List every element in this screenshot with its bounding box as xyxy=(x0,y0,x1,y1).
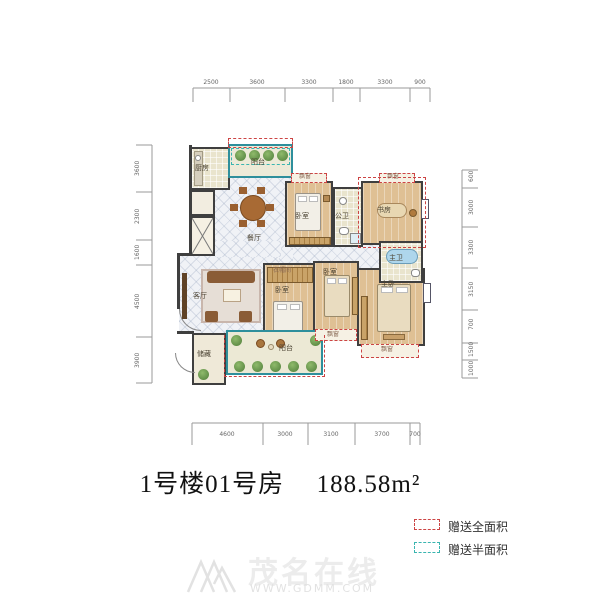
dim-left-3: 1600 xyxy=(134,238,142,266)
plan-title-area: 188.58m² xyxy=(317,471,421,498)
stair-cell xyxy=(190,190,215,216)
dim-top-5: 3300 xyxy=(373,79,397,86)
armchair xyxy=(205,311,218,322)
label-bay-2: 飘窗 xyxy=(387,174,399,181)
dim-bottom-5: 700 xyxy=(403,431,427,438)
legend-label-full: 赠送全面积 xyxy=(448,518,508,535)
bed xyxy=(377,284,411,332)
legend-swatch-red xyxy=(414,519,440,530)
pillow xyxy=(298,196,307,202)
room-storage xyxy=(192,333,226,385)
label-bath-common: 公卫 xyxy=(335,213,349,221)
label-bedroom-cloak: 卧室 xyxy=(275,287,289,295)
dim-right-6: 1500 xyxy=(468,339,476,359)
gift-full-area-outline-study xyxy=(358,177,426,248)
label-bay-1: 飘窗 xyxy=(299,174,311,181)
watermark-url: WWW.GDMM.COM xyxy=(250,582,374,595)
watermark-logo-icon xyxy=(186,550,244,596)
floor-plan: 厨房 阳台 餐厅 卧室 公卫 书房 主卫 客厅 衣帽间 卧室 卧室 主卧 阳台 … xyxy=(165,135,460,400)
label-bay-4: 飘窗 xyxy=(381,347,393,354)
chair xyxy=(230,204,238,211)
dim-right-5: 700 xyxy=(468,314,476,334)
pillow xyxy=(338,278,347,284)
pillow xyxy=(277,304,287,310)
label-living: 客厅 xyxy=(193,293,207,301)
dim-right-7: 1000 xyxy=(468,358,476,378)
watermark: 茂名在线 WWW.GDMM.COM xyxy=(186,548,446,600)
pillow xyxy=(309,196,318,202)
hall-floor xyxy=(215,241,281,257)
elevator-shaft xyxy=(190,216,215,256)
label-dining: 餐厅 xyxy=(247,235,261,243)
dim-left-1: 3600 xyxy=(134,154,142,182)
dim-right-2: 3000 xyxy=(468,195,476,219)
chair xyxy=(239,220,247,227)
wardrobe xyxy=(352,277,358,315)
elevator-x-icon xyxy=(192,218,213,254)
pillow xyxy=(290,304,300,310)
legend-swatch-cyan xyxy=(414,542,440,553)
plan-title-name: 1号楼01号房 xyxy=(140,471,285,498)
label-bath-master: 主卫 xyxy=(389,255,403,263)
dimension-ticks-top xyxy=(165,86,445,102)
dim-bottom-3: 3100 xyxy=(319,431,343,438)
wardrobe xyxy=(289,237,331,245)
plant-icon xyxy=(198,369,209,380)
kitchen-sink xyxy=(195,155,201,161)
label-bedroom-middle: 卧室 xyxy=(323,269,337,277)
dim-bottom-1: 4600 xyxy=(215,431,239,438)
dim-bottom-4: 3700 xyxy=(370,431,394,438)
label-cloakroom: 衣帽间 xyxy=(273,268,291,275)
storage-door-arc xyxy=(175,353,195,373)
label-master: 主卧 xyxy=(381,281,395,289)
toilet xyxy=(411,269,420,277)
dim-top-3: 3300 xyxy=(297,79,321,86)
chair xyxy=(266,204,274,211)
dim-right-4: 3150 xyxy=(468,277,476,301)
room-bedroom-top xyxy=(285,181,333,247)
bed xyxy=(324,275,350,317)
label-balcony-bottom: 阳台 xyxy=(279,345,293,353)
chair xyxy=(257,187,265,194)
label-bay-3: 飘窗 xyxy=(327,332,339,339)
dining-table xyxy=(240,195,266,221)
gift-full-area-outline-top xyxy=(228,138,293,148)
window xyxy=(423,283,431,303)
label-study: 书房 xyxy=(377,207,391,215)
dim-top-1: 2500 xyxy=(199,79,223,86)
bed-bench xyxy=(383,334,405,340)
gift-area-outline-balcony-bottom xyxy=(224,335,325,377)
dim-right-1: 600 xyxy=(468,166,476,186)
chair xyxy=(257,220,265,227)
wardrobe xyxy=(361,296,368,340)
dim-left-5: 3900 xyxy=(134,346,142,374)
dim-right-3: 3300 xyxy=(468,235,476,259)
pillow xyxy=(396,287,408,293)
dim-top-4: 1800 xyxy=(334,79,358,86)
coffee-table xyxy=(223,289,241,302)
chair xyxy=(239,187,247,194)
tv-cabinet xyxy=(182,273,187,319)
floorplan-page: 2500 3600 3300 1800 3300 900 4600 3000 3… xyxy=(0,0,600,600)
nightstand xyxy=(323,195,330,202)
sink xyxy=(339,197,347,205)
legend-label-half: 赠送半面积 xyxy=(448,541,508,558)
dim-left-4: 4500 xyxy=(134,287,142,315)
label-balcony-top: 阳台 xyxy=(251,159,265,167)
armchair xyxy=(239,311,252,322)
plan-title: 1号楼01号房 188.58m² xyxy=(70,464,490,500)
label-bedroom-top: 卧室 xyxy=(295,213,309,221)
label-storage: 储藏 xyxy=(197,351,211,359)
toilet xyxy=(339,227,349,235)
sofa xyxy=(207,271,255,283)
dim-top-2: 3600 xyxy=(245,79,269,86)
dim-top-6: 900 xyxy=(408,79,432,86)
dim-bottom-2: 3000 xyxy=(273,431,297,438)
wall-left-lower xyxy=(177,255,180,309)
pillow xyxy=(327,278,336,284)
dim-left-2: 2300 xyxy=(134,202,142,230)
label-kitchen: 厨房 xyxy=(195,165,209,173)
